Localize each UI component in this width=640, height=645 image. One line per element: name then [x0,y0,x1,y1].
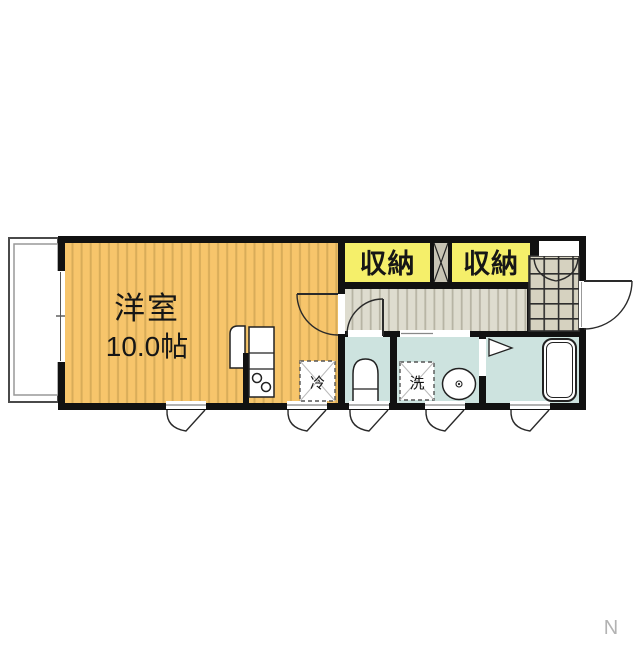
refrigerator-space: 冷 [300,361,335,401]
closet-1-label: 収納 [360,248,416,279]
entrance-door [584,281,632,329]
casement-window-4 [425,401,465,431]
main-room-label: 洋室 [114,291,180,326]
main-room [65,243,338,403]
washing-machine-space: 洗 [400,362,434,400]
entrance-door-opening [579,281,586,328]
casement-window-3 [349,401,389,431]
kitchen-partition-wall [243,353,249,403]
balcony [9,238,58,402]
casement-window-2 [287,401,327,431]
hallway [345,289,527,331]
toilet-icon [353,359,378,401]
washing-machine-label: 洗 [409,375,424,392]
refrigerator-label: 冷 [310,375,325,392]
kitchen-counter [230,326,245,368]
washroom-door-opening [400,330,470,337]
compass-north-label: N [604,617,618,639]
balcony-inner-rail [14,244,58,395]
washbasin-icon [443,369,476,400]
casement-window-1 [166,401,206,431]
bathtub-icon [543,339,576,401]
toilet-door-opening [348,330,383,337]
main-room-size-label: 10.0帖 [106,331,189,362]
balcony-window [56,271,65,362]
casement-window-5 [510,401,550,431]
x-brace-pillar [434,243,448,282]
closet-2-label: 収納 [463,248,519,279]
shoe-cabinet [539,241,579,256]
floor-plan: 冷 洗 洋室 10.0帖 収納 収納 N [0,0,640,640]
main-room-door-opening [338,294,345,334]
bathroom-door-opening [479,339,486,376]
